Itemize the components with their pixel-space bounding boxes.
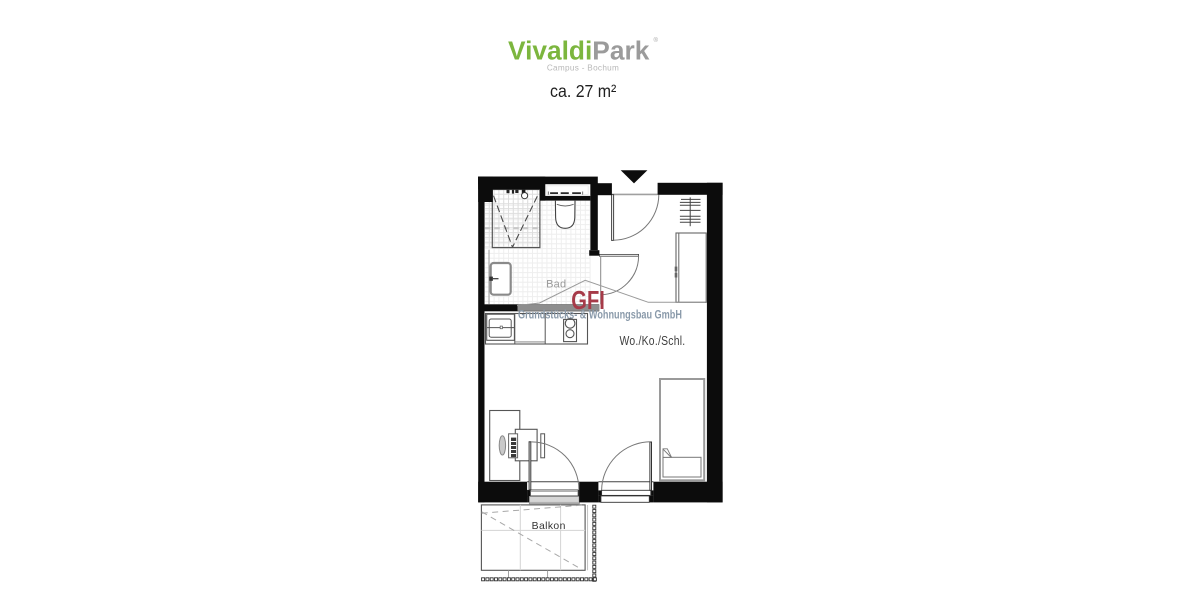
svg-text:Bad: Bad <box>546 278 566 290</box>
svg-text:®: ® <box>654 37 659 44</box>
svg-text:Wo./Ko./Schl.: Wo./Ko./Schl. <box>620 334 686 348</box>
svg-text:Campus - Bochum: Campus - Bochum <box>547 63 619 72</box>
svg-text:Balkon: Balkon <box>532 521 566 532</box>
svg-text:VivaldiPark: VivaldiPark <box>508 35 650 65</box>
svg-text:Grundstücks- & Wohnungsbau Gmb: Grundstücks- & Wohnungsbau GmbH <box>518 310 682 322</box>
svg-text:ca. 27 m²: ca. 27 m² <box>550 81 617 101</box>
